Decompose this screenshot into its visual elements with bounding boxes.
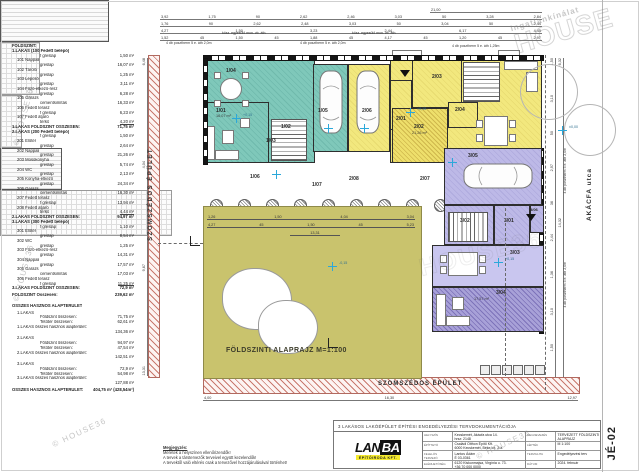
level-marker-icon bbox=[360, 124, 369, 133]
schedule-line-area: 6,28 m² bbox=[120, 92, 134, 97]
dim-number: 1,75 bbox=[207, 15, 216, 19]
field-value: M 1:100 bbox=[556, 442, 600, 451]
entry-arrow-icon bbox=[526, 214, 536, 221]
schedule-line-area: 127,88 m² bbox=[115, 381, 134, 386]
lintel-annotation: 4 db posztherm 5 e. áth 2,0m bbox=[166, 41, 212, 45]
lintel-annotation: 4 db posztherm 5 e. áth 1,25m bbox=[452, 44, 499, 48]
schedule-line-text bbox=[12, 381, 40, 386]
dim-number: 1,50 bbox=[235, 36, 244, 40]
dim-bottom: 4,0016,3012,97 bbox=[203, 394, 578, 401]
dim-row-2: 1,76902,622,483,03503,04502,44 bbox=[160, 20, 542, 27]
dim-number: 5,23 bbox=[406, 223, 415, 227]
dim-number: 4,04 bbox=[142, 161, 146, 168]
section-mark bbox=[328, 338, 338, 348]
dim-number: 4,27 bbox=[207, 223, 216, 227]
sofa-unit3 bbox=[436, 294, 446, 326]
field-value: TERVEZETT FÖLDSZINTIALAPRAJZ bbox=[556, 432, 600, 441]
title-block: 3 LAKÁSOS LAKÓÉPÜLET ÉPÍTÉSI ENGEDÉLYEZÉ… bbox=[333, 420, 601, 469]
schedule-line: 142,51 m² bbox=[12, 355, 134, 360]
field-value: Lantos ÁdámÉ 03-0361 bbox=[453, 451, 525, 460]
dim-garden-1: 1,261,504,043,04 bbox=[207, 213, 415, 220]
title-block-rows-left: HELYSZÍN Kecskemét, Akácfa utca 14.hrsz:… bbox=[423, 432, 526, 469]
partition-wall bbox=[203, 102, 268, 103]
room-schedule: FÖLDSZINT: 1.LAKÁS (100 Fedett belépő) f… bbox=[12, 44, 134, 393]
schedule-line-area: 54,98 m² bbox=[117, 372, 134, 377]
level-marker-icon bbox=[558, 126, 567, 135]
schedule-line-area: 5,74 m² bbox=[120, 163, 134, 168]
room-label: 2/03 bbox=[432, 74, 442, 80]
room-label: 3/06 bbox=[530, 207, 538, 212]
dim-number: 3,04 bbox=[406, 215, 415, 219]
schedule-line-area: 71,75 m² bbox=[117, 125, 134, 130]
schedule-line-text bbox=[12, 330, 40, 335]
dim-row-4: 1,52451,50451,88454,17451,20452,97 bbox=[160, 34, 542, 41]
schedule-line-area: 62,61 m² bbox=[117, 320, 134, 325]
field-value-line2: 6000 Kecskemét, Béke krt. 2/a. bbox=[455, 446, 524, 450]
lintel-annotation: kösz. egyesülő mon. vb. áth. bbox=[352, 31, 396, 35]
dim-number: 1,26 bbox=[207, 215, 216, 219]
notes-block: Megjegyzés: Méretek a helyszínen ellenőr… bbox=[163, 445, 329, 465]
title-block-row: DÁTUM 2024. február bbox=[526, 461, 600, 470]
dim-number: 1,76 bbox=[160, 22, 169, 26]
dim-number: 45 bbox=[273, 36, 279, 40]
room-area: 17,57 m² bbox=[474, 297, 489, 301]
dim-number: 4,00 bbox=[203, 396, 212, 400]
schedule-line-area: 17,57 m² bbox=[117, 263, 134, 268]
schedule-line-text: ÖSSZES HASZNOS ALAPTERÜLET bbox=[12, 304, 82, 309]
schedule-line-area: 72,9 m² bbox=[120, 286, 134, 291]
field-value: 2024. február bbox=[556, 461, 600, 470]
entry-arrow-icon bbox=[400, 70, 410, 77]
level-marker-icon bbox=[272, 170, 281, 179]
schedule-line-area: 94,97 m² bbox=[117, 215, 134, 220]
dim-number: 2,97 bbox=[533, 36, 542, 40]
planter-icon bbox=[491, 365, 501, 375]
lintel-annotation-vertical: 4 db posztherm 5 e. áth 2,0m bbox=[563, 262, 567, 308]
dim-number: 45 bbox=[199, 36, 205, 40]
dim-number: 2,62 bbox=[252, 22, 261, 26]
neighbor-bottom-label: SZOMSZÉDOS ÉPÜLET bbox=[378, 381, 462, 387]
schedule-line: 3.LAKÁS FÖLDSZINT ÖSSZESEN: 72,9 m² bbox=[12, 286, 134, 291]
planter-icon bbox=[502, 365, 512, 375]
title-block-row: ÉPÍTTETŐ Családi Otthon Építő Kft.6000 K… bbox=[423, 442, 525, 452]
schedule-line-area: 239,62 m² bbox=[115, 293, 134, 298]
dim-number: 3,03 bbox=[348, 22, 357, 26]
title-block-rows-right: MEGNEVEZÉS TERVEZETT FÖLDSZINTIALAPRAJZ … bbox=[526, 432, 600, 469]
sofa-unit3 bbox=[446, 316, 470, 326]
dim-number: 1,36 bbox=[550, 271, 554, 278]
dim-number: 90 bbox=[255, 15, 261, 19]
schedule-line-area: 21,26 m² bbox=[117, 153, 134, 158]
chair bbox=[476, 134, 483, 142]
street-label: AKÁCFA utca bbox=[586, 168, 593, 221]
logo-subtitle: ÉPÍTŐIRODA KFT. bbox=[356, 455, 400, 460]
dim-col-left: 6,484,049,6713,31 bbox=[140, 58, 148, 376]
level-value: -0,15 bbox=[339, 261, 347, 265]
dim-garden-3: 13,31 bbox=[290, 229, 340, 236]
chair bbox=[242, 100, 249, 107]
schedule-line-area: 1,50 m² bbox=[120, 134, 134, 139]
dim-number: 45 bbox=[497, 36, 503, 40]
dim-number: 50 bbox=[441, 15, 447, 19]
level-value: +0,15 bbox=[243, 113, 252, 117]
exterior-wall-west bbox=[203, 58, 208, 165]
armchair bbox=[240, 118, 250, 128]
title-block-row: ELÉRHETŐSÉG 6120 Kiskunmajsa, Virgínia u… bbox=[423, 461, 525, 470]
planter-icon bbox=[480, 365, 490, 375]
planter-icon bbox=[513, 365, 523, 375]
dim-number: 3,04 bbox=[440, 22, 449, 26]
dim-number: 1,50 bbox=[550, 344, 554, 351]
schedule-line-area: 16,30 m² bbox=[117, 191, 134, 196]
dim-number: 21,00 bbox=[430, 8, 442, 12]
dim-number: 45 bbox=[348, 36, 354, 40]
field-label: TERVFAJTA bbox=[526, 451, 556, 460]
field-label: LÉPTÉK bbox=[526, 442, 556, 451]
neighbor-left-label: SZOMSZÉDOS ÉPÜLET bbox=[148, 148, 154, 241]
field-value: Engedélyezési terv bbox=[556, 451, 600, 460]
dim-number: 3,10 bbox=[550, 308, 554, 315]
field-value-line1: Engedélyezési terv bbox=[558, 452, 599, 456]
dim-number: 3,23 bbox=[309, 29, 318, 33]
partition-wall bbox=[268, 102, 269, 163]
field-value: Kecskemét, Akácfa utca 14.hrsz: 2148 bbox=[453, 432, 525, 441]
dim-row-3: 4,271,503,232,446,174,45 bbox=[160, 27, 542, 34]
dim-number: 45 bbox=[358, 223, 364, 227]
project-title: 3 LAKÁSOS LAKÓÉPÜLET ÉPÍTÉSI ENGEDÉLYEZÉ… bbox=[334, 421, 600, 432]
schedule-line-area: 404,75 m² (428,54m²) bbox=[93, 388, 134, 393]
title-block-row: HELYSZÍN Kecskemét, Akácfa utca 14.hrsz:… bbox=[423, 432, 525, 442]
schedule-line-area: 134,36 m² bbox=[115, 330, 134, 335]
title-block-row: MEGNEVEZÉS TERVEZETT FÖLDSZINTIALAPRAJZ bbox=[526, 432, 600, 442]
tree-icon bbox=[258, 300, 318, 354]
dim-number: 4,04 bbox=[339, 215, 348, 219]
field-value-line2: ALAPRAJZ bbox=[558, 437, 599, 441]
field-value-line2: hrsz: 2148 bbox=[455, 437, 524, 441]
floorplan-sheet: FÖLDSZINT: 1.LAKÁS (100 Fedett belépő) f… bbox=[0, 0, 640, 472]
dim-number: 4,27 bbox=[160, 29, 169, 33]
level-value: ±0,00 bbox=[569, 125, 578, 129]
chair bbox=[214, 100, 221, 107]
dim-number: 50 bbox=[550, 131, 554, 135]
sofa-unit1 bbox=[215, 150, 239, 160]
room-label: 3/02 bbox=[460, 218, 470, 224]
schedule-line-text: FÖLDSZINT Összesen: bbox=[12, 293, 58, 298]
schedule-line-text bbox=[12, 355, 40, 360]
dim-number: 3,92 bbox=[160, 15, 169, 19]
field-label: ÉPÍTTETŐ bbox=[423, 442, 453, 451]
schedule-line-area: 142,51 m² bbox=[115, 355, 134, 360]
room-3-01 bbox=[494, 205, 530, 245]
schedule-line-area: 1,10 m² bbox=[120, 225, 134, 230]
chair bbox=[479, 255, 486, 263]
dim-garden-2: 4,27451,50455,23 bbox=[207, 221, 415, 228]
dim-number: 2,97 bbox=[550, 164, 554, 171]
field-label: DÁTUM bbox=[526, 461, 556, 470]
level-marker-icon bbox=[494, 258, 503, 267]
notes-lines: Méretek a helyszínen ellenőrizendők!A te… bbox=[163, 450, 329, 465]
schedule-line: ÖSSZES HASZNOS ALAPTERÜLET bbox=[12, 304, 134, 309]
schedule-line-area: 1,25 m² bbox=[120, 244, 134, 249]
room-label: 2/08 bbox=[349, 176, 359, 182]
dim-number: 3,03 bbox=[394, 15, 403, 19]
room-label: 2/04 bbox=[455, 107, 465, 113]
field-value-line1: TERVEZETT FÖLDSZINTI bbox=[558, 433, 599, 437]
dim-number: 1,50 bbox=[306, 223, 315, 227]
dim-number: 6,32 bbox=[558, 58, 562, 65]
dining-table-unit3 bbox=[448, 252, 478, 276]
room-2-04 bbox=[448, 102, 478, 128]
schedule-line-area: 1,25 m² bbox=[120, 73, 134, 78]
dim-number: 4,45 bbox=[533, 29, 542, 33]
dim-row-1: 3,921,75902,622,463,03503,282,84 bbox=[160, 13, 542, 20]
dim-number: 1,52 bbox=[160, 36, 169, 40]
schedule-line-area: 6,23 m² bbox=[120, 111, 134, 116]
room-label: 1/03 bbox=[266, 138, 276, 144]
chair bbox=[479, 266, 486, 274]
title-block-row: TERVFAJTA Engedélyezési terv bbox=[526, 451, 600, 461]
street-tree-icon bbox=[520, 64, 578, 120]
field-value: Családi Otthon Építő Kft.6000 Kecskemét,… bbox=[453, 442, 525, 451]
note-line: A tervektől való eltérés csak a tervezőv… bbox=[163, 460, 329, 465]
dim-number: 12,97 bbox=[566, 396, 578, 400]
dim-number: 45 bbox=[258, 223, 264, 227]
field-value-line1: 2024. február bbox=[558, 461, 599, 465]
dim-number: 16,30 bbox=[384, 396, 396, 400]
dim-number: 2,46 bbox=[346, 15, 355, 19]
logo-ba: BA bbox=[380, 440, 401, 455]
room-label: 1/02 bbox=[281, 124, 291, 130]
level-marker-icon bbox=[232, 114, 241, 123]
dim-number: 4,17 bbox=[384, 36, 393, 40]
chair bbox=[214, 72, 221, 79]
exterior-wall-windows bbox=[203, 55, 544, 61]
dim-number: 1,88 bbox=[309, 36, 318, 40]
level-value: +0,15 bbox=[505, 257, 514, 261]
room-label: 3/03 bbox=[510, 250, 520, 256]
room-label: 1/07 bbox=[312, 182, 322, 188]
room-label: 1/05 bbox=[318, 108, 328, 114]
room-label: 2/07 bbox=[420, 176, 430, 182]
dim-number: 13,31 bbox=[142, 366, 146, 376]
dim-number: 2,62 bbox=[299, 15, 308, 19]
title-block-body: LANBA ÉPÍTŐIRODA KFT. HELYSZÍN Kecskemét… bbox=[334, 432, 600, 469]
field-value-line2: +36 70 000 0000 bbox=[455, 465, 524, 469]
lintel-annotation-vertical: 4 db posztherm 5 e. áth 2,0m bbox=[563, 148, 567, 194]
dim-number: 6,48 bbox=[142, 58, 146, 65]
street-tree-icon bbox=[564, 104, 616, 156]
plan-title: FÖLDSZINTI ALAPRAJZ M=1:100 bbox=[226, 347, 347, 354]
dim-number: 13,31 bbox=[309, 231, 321, 235]
dining-table-unit2 bbox=[484, 116, 508, 146]
dining-table-unit1 bbox=[220, 78, 242, 100]
schedule-line-area: 8,54 m² bbox=[120, 234, 134, 239]
schedule-line-area: 14,31 m² bbox=[117, 253, 134, 258]
schedule-line-area: 3,11 m² bbox=[120, 82, 134, 87]
schedule-line: 134,36 m² bbox=[12, 330, 134, 335]
schedule-line-area: 1,50 m² bbox=[120, 54, 134, 59]
lintel-annotation: 4 db posztherm 5 e. áth 2,0m bbox=[300, 41, 346, 45]
field-label: FELELŐS TERVEZŐ bbox=[423, 451, 453, 460]
schedule-line: 127,88 m² bbox=[12, 381, 134, 386]
dim-number: 45 bbox=[422, 36, 428, 40]
coffee-table bbox=[452, 297, 464, 310]
schedule-line-area: 16,33 m² bbox=[117, 101, 134, 106]
chair bbox=[242, 72, 249, 79]
logo-text: LANBA bbox=[355, 441, 401, 454]
sheet-margin-line bbox=[602, 0, 603, 472]
schedule-line-text: 3.LAKÁS FÖLDSZINT ÖSSZESEN: bbox=[12, 286, 80, 291]
schedule-line-area: 16,07 m² bbox=[117, 63, 134, 68]
chair bbox=[476, 120, 483, 128]
property-line bbox=[505, 208, 506, 376]
room-label: 3/05 bbox=[468, 153, 478, 159]
dim-number: 2,44 bbox=[550, 234, 554, 241]
dim-number: 90 bbox=[208, 22, 214, 26]
level-marker-icon bbox=[406, 108, 415, 117]
chair bbox=[440, 255, 447, 263]
field-label: ELÉRHETŐSÉG bbox=[423, 461, 453, 470]
title-block-row: FELELŐS TERVEZŐ Lantos ÁdámÉ 03-0361 bbox=[423, 451, 525, 461]
chair bbox=[509, 134, 516, 142]
dim-overall: 21,00 bbox=[430, 6, 542, 13]
coffee-table bbox=[222, 130, 234, 144]
room-label: 1/04 bbox=[226, 68, 236, 74]
schedule-line-area: 47,54 m² bbox=[117, 346, 134, 351]
dim-number: 2,84 bbox=[533, 15, 542, 19]
chair bbox=[509, 120, 516, 128]
dim-number: 9,67 bbox=[142, 264, 146, 271]
dim-number: 2,44 bbox=[533, 22, 542, 26]
chair bbox=[440, 266, 447, 274]
planter-icon bbox=[535, 365, 545, 375]
dim-number: 14,32 bbox=[558, 218, 562, 228]
schedule-line-area: 17,03 m² bbox=[117, 272, 134, 277]
room-2-03 bbox=[412, 58, 462, 108]
dim-number: 1,50 bbox=[273, 215, 282, 219]
dim-number: 2,48 bbox=[300, 22, 309, 26]
room-label: 2/06 bbox=[362, 108, 372, 114]
stairs-unit2 bbox=[463, 62, 500, 102]
level-marker-icon bbox=[328, 262, 337, 271]
section-mark bbox=[190, 236, 200, 246]
planter-icon bbox=[524, 365, 534, 375]
schedule-line-text: ÖSSZES HASZNOS ALAPTERÜLET: bbox=[12, 388, 83, 393]
field-value-line2: É 03-0361 bbox=[455, 456, 524, 460]
field-label: MEGNEVEZÉS bbox=[526, 432, 556, 441]
field-value: 6120 Kiskunmajsa, Virgínia u. 73.+36 70 … bbox=[453, 461, 525, 470]
field-label: HELYSZÍN bbox=[423, 432, 453, 441]
dim-number: 1,20 bbox=[458, 36, 467, 40]
lintel-annotation: kösz. egyesülő mon. vb. áth. bbox=[222, 31, 266, 35]
schedule-line-area: 24,34 m² bbox=[117, 182, 134, 187]
room-area: 16,07 m² bbox=[216, 114, 231, 118]
dim-number: 6,17 bbox=[458, 29, 467, 33]
schedule-line-area: 13,94 m² bbox=[117, 201, 134, 206]
logo-lan: LAN bbox=[355, 440, 380, 455]
dim-number: 50 bbox=[396, 22, 402, 26]
title-block-row: LÉPTÉK M 1:100 bbox=[526, 442, 600, 452]
dim-number: 3,28 bbox=[485, 15, 494, 19]
car-icon bbox=[462, 160, 534, 190]
dim-number: 36 bbox=[550, 201, 554, 205]
sheet-number: JÉ-02 bbox=[606, 426, 618, 460]
schedule-line-area: 2,13 m² bbox=[120, 172, 134, 177]
dim-number: 50 bbox=[488, 22, 494, 26]
room-area: 21,26 m² bbox=[412, 131, 427, 135]
room-label: 2/01 bbox=[396, 116, 406, 122]
level-value: +0,15 bbox=[417, 107, 426, 111]
company-logo: LANBA ÉPÍTŐIRODA KFT. bbox=[334, 432, 423, 469]
schedule-line: ÖSSZES HASZNOS ALAPTERÜLET: 404,75 m² (4… bbox=[12, 388, 134, 393]
room-label: 1/06 bbox=[250, 174, 260, 180]
field-value-line1: M 1:100 bbox=[558, 442, 599, 446]
schedule-line-area: 2,64 m² bbox=[120, 144, 134, 149]
room-label: 2/02 bbox=[414, 124, 424, 130]
stairs-unit3 bbox=[448, 212, 488, 242]
level-marker-icon bbox=[324, 124, 333, 133]
level-marker-icon bbox=[448, 158, 457, 167]
